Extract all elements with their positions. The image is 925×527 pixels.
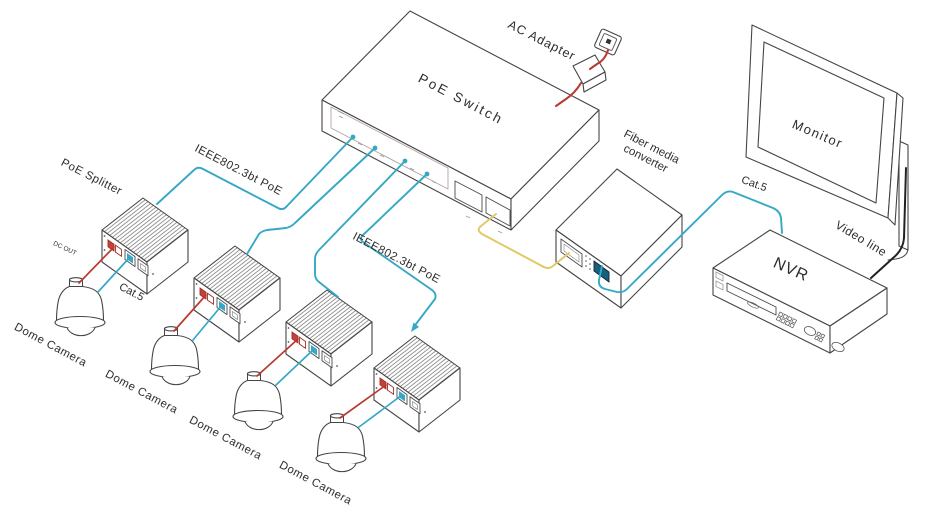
label-cat5-nvr: Cat.5	[740, 174, 769, 194]
poe-cable-3	[315, 161, 405, 297]
poe-splitter-1	[102, 198, 188, 294]
label-poe-splitter: PoE Splitter	[59, 157, 124, 198]
dome-camera-1	[55, 278, 105, 336]
switch-port-dot-4	[425, 172, 430, 177]
poe-splitter-3	[286, 290, 372, 386]
dome-camera-2	[150, 327, 200, 385]
poe-cable-4-arrowhead	[411, 323, 419, 333]
dome-camera-3	[233, 372, 283, 430]
label-fiber-media-converter: Fiber media converter	[616, 128, 682, 178]
label-ac-adapter: AC Adapter	[506, 17, 578, 63]
label-video-line: Video line	[833, 218, 889, 260]
switch-port-dot-3	[403, 159, 408, 164]
nvr	[713, 230, 887, 353]
dome-camera-4	[316, 414, 366, 472]
poe-splitter-4	[374, 336, 460, 432]
label-poe-standard-2: IEEE802.3bt PoE	[351, 231, 443, 286]
network-diagram: AC Adapter PoE Switch IEEE802.3bt PoE IE…	[0, 0, 925, 527]
label-dc-out: DC OUT	[52, 240, 78, 257]
switch-port-dot-2	[373, 146, 378, 151]
poe-splitter-2	[194, 246, 280, 342]
fiber-media-converter	[556, 169, 682, 308]
switch-port-dot-1	[351, 135, 356, 140]
